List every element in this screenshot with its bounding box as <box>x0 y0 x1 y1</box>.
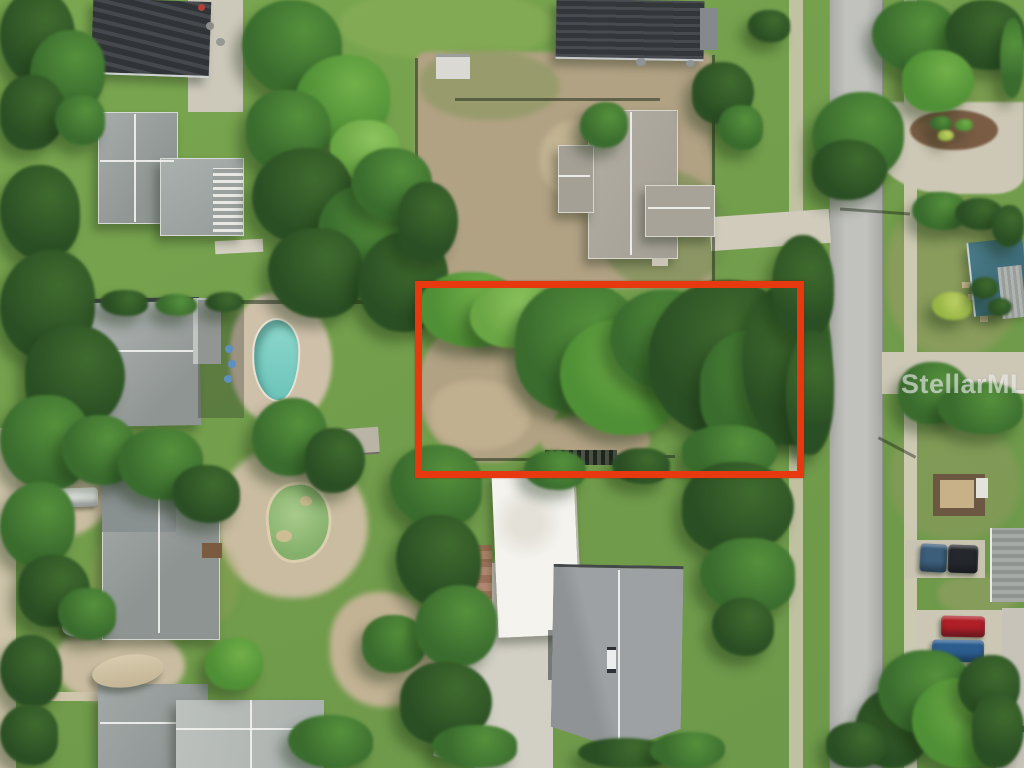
tree-canopy <box>988 298 1012 316</box>
tree-canopy <box>0 705 58 765</box>
tree-canopy <box>432 725 517 768</box>
tree-canopy <box>155 294 197 316</box>
tree-canopy <box>718 105 763 150</box>
tree-canopy <box>970 277 998 299</box>
tree-canopy <box>0 482 75 567</box>
tree-canopy <box>0 635 62 707</box>
tree-canopy <box>55 95 105 145</box>
tree-canopy <box>580 102 628 148</box>
tree-canopy <box>305 428 365 493</box>
tree-canopy <box>992 205 1024 247</box>
tree-canopy <box>172 465 240 523</box>
tree-canopy <box>1000 18 1024 98</box>
tree-canopy <box>100 290 148 316</box>
tree-canopy <box>398 182 458 262</box>
tree-canopy <box>748 10 790 42</box>
tree-canopy <box>938 130 954 141</box>
tree-canopy <box>812 140 887 200</box>
tree-canopy <box>902 50 974 112</box>
tree-canopy <box>58 588 116 640</box>
lot-boundary <box>415 281 804 478</box>
tree-canopy <box>712 598 774 656</box>
tree-canopy <box>955 119 973 131</box>
tree-canopy <box>0 165 80 260</box>
tree-canopy <box>972 692 1024 768</box>
watermark: StellarMLS <box>901 369 1024 400</box>
tree-canopy <box>415 585 497 667</box>
tree-canopy <box>288 715 373 768</box>
tree-canopy <box>932 292 972 320</box>
tree-canopy <box>930 116 952 131</box>
tree-canopy <box>205 292 243 312</box>
tree-canopy <box>205 638 263 690</box>
tree-canopy <box>268 228 363 318</box>
tree-canopy <box>650 732 725 768</box>
aerial-photo: StellarMLS <box>0 0 1024 768</box>
